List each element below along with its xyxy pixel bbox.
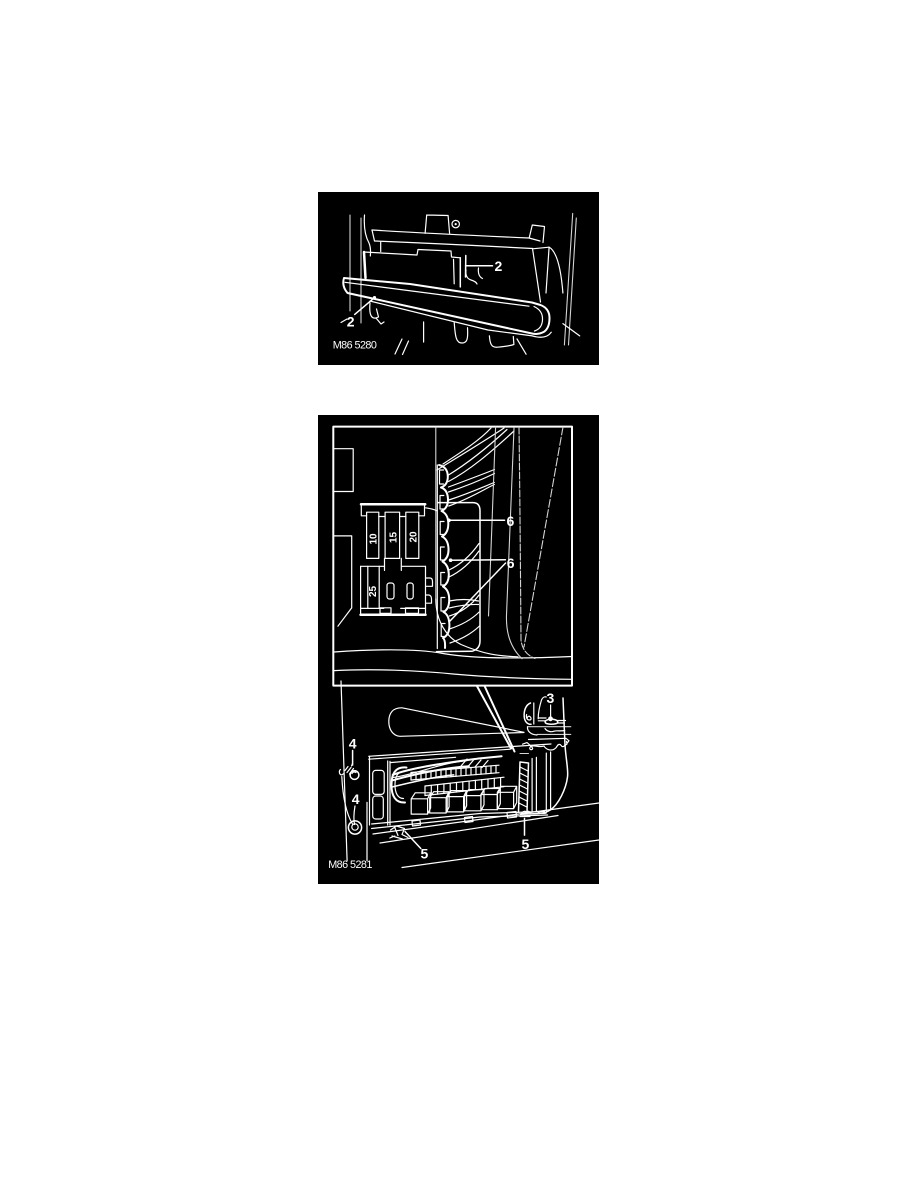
svg-text:3: 3	[547, 690, 555, 706]
svg-text:20: 20	[408, 531, 419, 543]
svg-text:15: 15	[388, 531, 399, 543]
svg-text:5: 5	[522, 836, 530, 852]
svg-text:2: 2	[495, 258, 503, 274]
svg-text:4: 4	[349, 736, 357, 752]
svg-text:2: 2	[347, 313, 355, 329]
svg-text:6: 6	[507, 555, 515, 571]
svg-text:4: 4	[352, 791, 360, 807]
svg-text:5: 5	[421, 846, 429, 862]
svg-text:6: 6	[507, 513, 515, 529]
svg-text:M86 5280: M86 5280	[333, 340, 377, 352]
svg-text:25: 25	[368, 585, 379, 597]
svg-text:10: 10	[369, 533, 380, 545]
svg-text:M86 5281: M86 5281	[328, 859, 372, 871]
